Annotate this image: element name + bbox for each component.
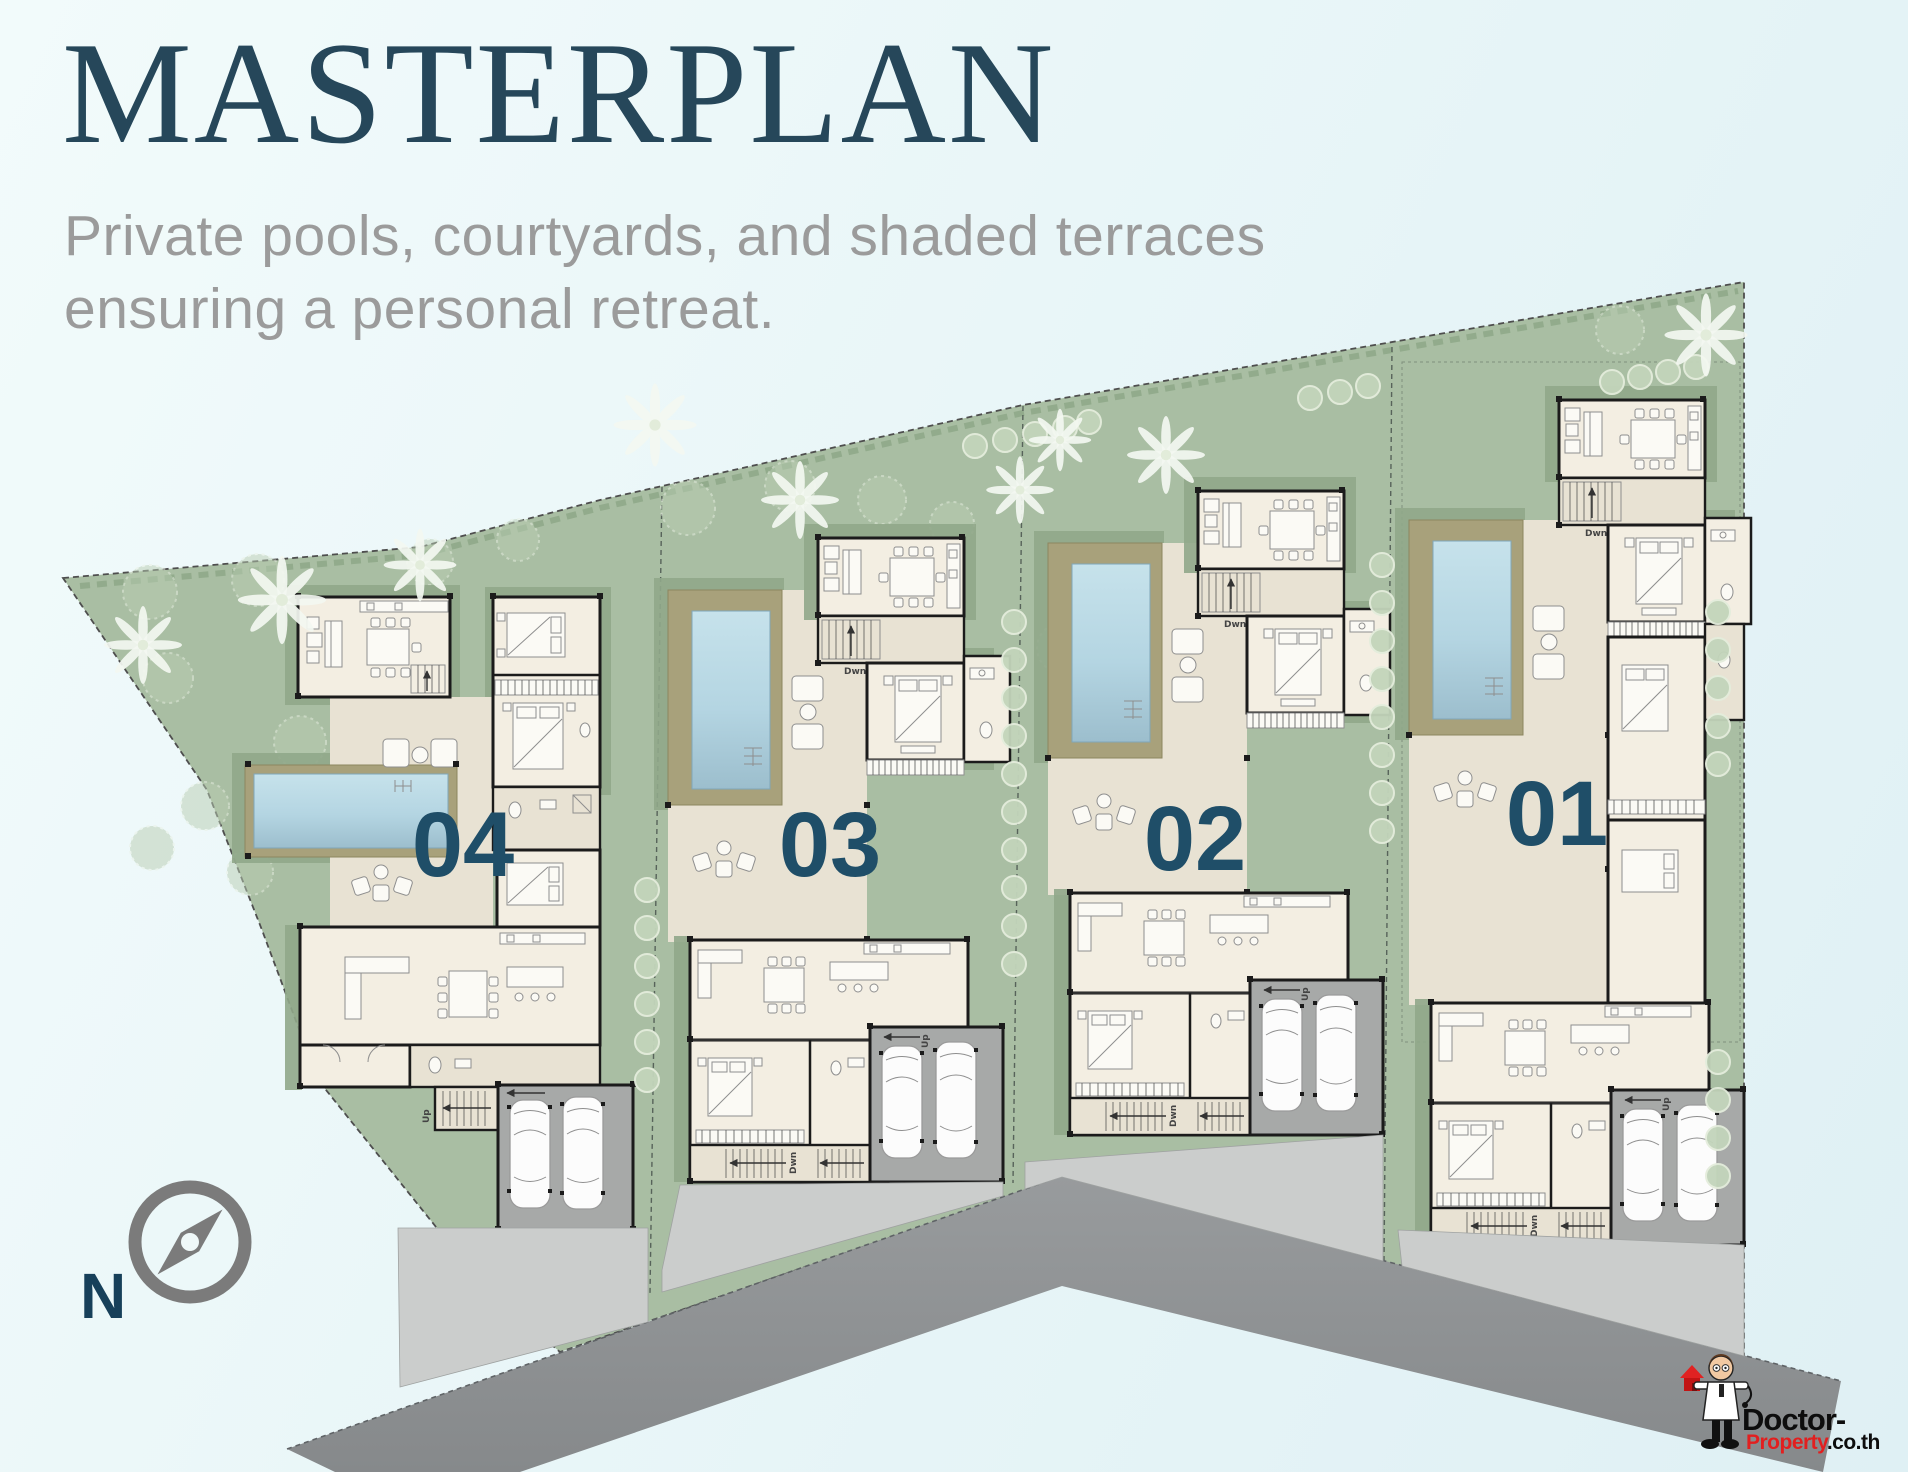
- tree-icon: [1706, 638, 1730, 662]
- palm-tree-icon: [761, 461, 839, 539]
- villa-03-label: 03: [779, 794, 881, 896]
- tree-icon: [1002, 838, 1026, 862]
- tree-icon: [963, 434, 987, 458]
- tree-icon: [1706, 752, 1730, 776]
- tree-icon: [1370, 743, 1394, 767]
- tree-icon: [1370, 667, 1394, 691]
- tree-icon: [635, 878, 659, 902]
- tree-icon: [1628, 365, 1652, 389]
- tree-icon: [1370, 705, 1394, 729]
- palm-tree-icon: [1664, 293, 1747, 376]
- masterplan-title: MASTERPLAN: [62, 20, 1055, 166]
- tree-icon: [1328, 380, 1352, 404]
- tree-icon: [1002, 914, 1026, 938]
- tree-icon: [635, 992, 659, 1016]
- tree-icon: [1706, 1088, 1730, 1112]
- logo-domain-text: Property.co.th: [1746, 1431, 1880, 1454]
- palm-tree-icon: [613, 383, 696, 466]
- palm-tree-icon: [1029, 409, 1091, 471]
- masterplan-slide: Dwn: [0, 0, 1908, 1472]
- villa-01-label: 01: [1506, 763, 1608, 865]
- villa-01-floorplan: 01: [1395, 386, 1751, 1247]
- tree-icon: [1002, 686, 1026, 710]
- tree-icon: [1706, 600, 1730, 624]
- tree-icon: [635, 1068, 659, 1092]
- tree-icon: [1002, 762, 1026, 786]
- tree-icon: [1002, 610, 1026, 634]
- palm-tree-icon: [986, 456, 1054, 524]
- masterplan-subtitle: Private pools, courtyards, and shaded te…: [64, 200, 1484, 346]
- tree-icon: [1706, 1126, 1730, 1150]
- tree-icon: [1370, 819, 1394, 843]
- tree-icon: [1600, 370, 1624, 394]
- tree-icon: [1002, 876, 1026, 900]
- palm-tree-icon: [384, 529, 457, 602]
- tree-icon: [1706, 1164, 1730, 1188]
- tree-icon: [1706, 714, 1730, 738]
- tree-icon: [1002, 648, 1026, 672]
- palm-tree-icon: [104, 606, 182, 684]
- subtitle-line-1: Private pools, courtyards, and shaded te…: [64, 200, 1484, 273]
- tree-icon: [1706, 676, 1730, 700]
- tree-icon: [993, 428, 1017, 452]
- compass-icon: [135, 1187, 245, 1297]
- palm-tree-icon: [1127, 416, 1205, 494]
- tree-icon: [1370, 781, 1394, 805]
- tree-icon: [1370, 591, 1394, 615]
- tree-icon: [1370, 553, 1394, 577]
- tree-icon: [635, 1030, 659, 1054]
- tree-icon: [635, 954, 659, 978]
- tree-icon: [1002, 724, 1026, 748]
- villa-04-label: 04: [412, 794, 514, 896]
- tree-icon: [1370, 629, 1394, 653]
- villa-02-garage: [1247, 976, 1385, 1137]
- tree-icon: [1706, 1050, 1730, 1074]
- tree-icon: [1298, 386, 1322, 410]
- compass-north-label: N: [80, 1260, 126, 1332]
- villa-02-label: 02: [1144, 788, 1246, 890]
- villa-03-garage: [867, 1023, 1005, 1184]
- subtitle-line-2: ensuring a personal retreat.: [64, 273, 1484, 346]
- tree-icon: [1002, 952, 1026, 976]
- tree-icon: [1002, 800, 1026, 824]
- tree-icon: [635, 916, 659, 940]
- palm-tree-icon: [238, 556, 326, 644]
- tree-icon: [1356, 374, 1380, 398]
